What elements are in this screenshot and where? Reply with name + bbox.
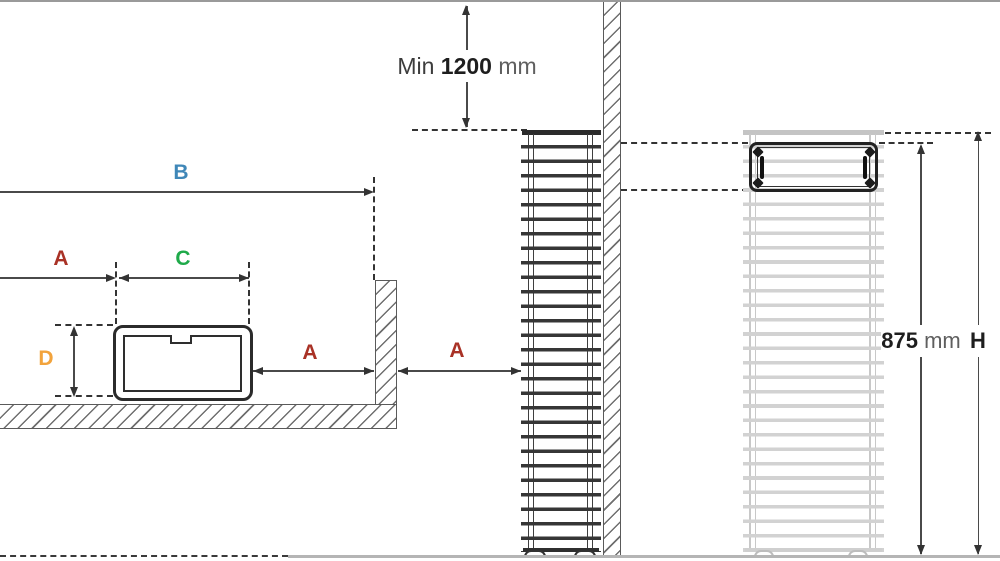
arrow-up-icon: [974, 131, 982, 141]
arrow-down-icon: [974, 545, 982, 555]
d-extension-dash-top: [55, 324, 113, 326]
mount-height-label: 875 mm: [881, 325, 961, 357]
arrow-left-icon: [253, 367, 263, 375]
unit-top-notch: [170, 335, 192, 344]
mount-height-unit: mm: [924, 328, 961, 354]
c-extension-dash-left: [115, 262, 117, 324]
arrow-down-icon: [462, 118, 470, 128]
min-clearance-label: Min 1200 mm: [392, 50, 542, 82]
counter-slab: [0, 404, 397, 429]
a-right-label: A: [444, 340, 470, 361]
arrow-up-icon: [70, 326, 78, 336]
bracket-ref-dash-top: [621, 142, 748, 144]
installation-diagram: Min 1200 mm B A C D: [0, 0, 1000, 561]
c-dimension-line: [119, 277, 249, 279]
a-mid-dimension-line: [253, 370, 374, 372]
arrow-up-icon: [917, 144, 925, 154]
counter-upright-wall: [375, 280, 397, 405]
ceiling-line: [0, 0, 1000, 2]
min-clearance-value: 1200: [441, 53, 492, 80]
mount-height-ref-dash: [879, 142, 933, 144]
radiator-rungs: [743, 145, 884, 552]
bracket-ref-dash-bottom: [621, 189, 748, 191]
arrow-down-icon: [70, 387, 78, 397]
arrow-up-icon: [462, 5, 470, 15]
arrow-left-icon: [119, 274, 129, 282]
b-dimension-line: [0, 191, 366, 193]
a-right-dimension-line: [398, 370, 521, 372]
d-label: D: [33, 348, 59, 369]
arrow-down-icon: [917, 545, 925, 555]
h-label: H: [964, 325, 992, 357]
min-clearance-prefix: Min: [397, 53, 434, 80]
a-left-dimension-line: [0, 277, 107, 279]
radiator-top-bar: [743, 130, 884, 135]
mount-height-value: 875: [881, 328, 918, 354]
min-clearance-unit: mm: [498, 53, 536, 80]
h-value: H: [970, 328, 986, 354]
bracket-inner-frame: [757, 147, 870, 187]
wall: [603, 2, 621, 557]
bracket-clip: [760, 156, 764, 179]
a-left-label: A: [48, 248, 74, 269]
floor-line: [288, 555, 1000, 558]
b-label: B: [168, 162, 194, 183]
arrow-right-icon: [364, 367, 374, 375]
arrow-left-icon: [398, 367, 408, 375]
radiator-rungs: [521, 145, 601, 552]
d-dimension-line: [73, 330, 75, 390]
d-extension-dash-bottom: [55, 395, 113, 397]
bracket-clip: [863, 156, 867, 179]
a-mid-label: A: [297, 342, 323, 363]
floor-dashed-line: [0, 555, 288, 557]
arrow-right-icon: [511, 367, 521, 375]
c-extension-dash-right: [248, 262, 250, 324]
min-clearance-ref-dash: [412, 129, 527, 131]
b-extension-dash: [373, 177, 375, 280]
c-label: C: [170, 248, 196, 269]
